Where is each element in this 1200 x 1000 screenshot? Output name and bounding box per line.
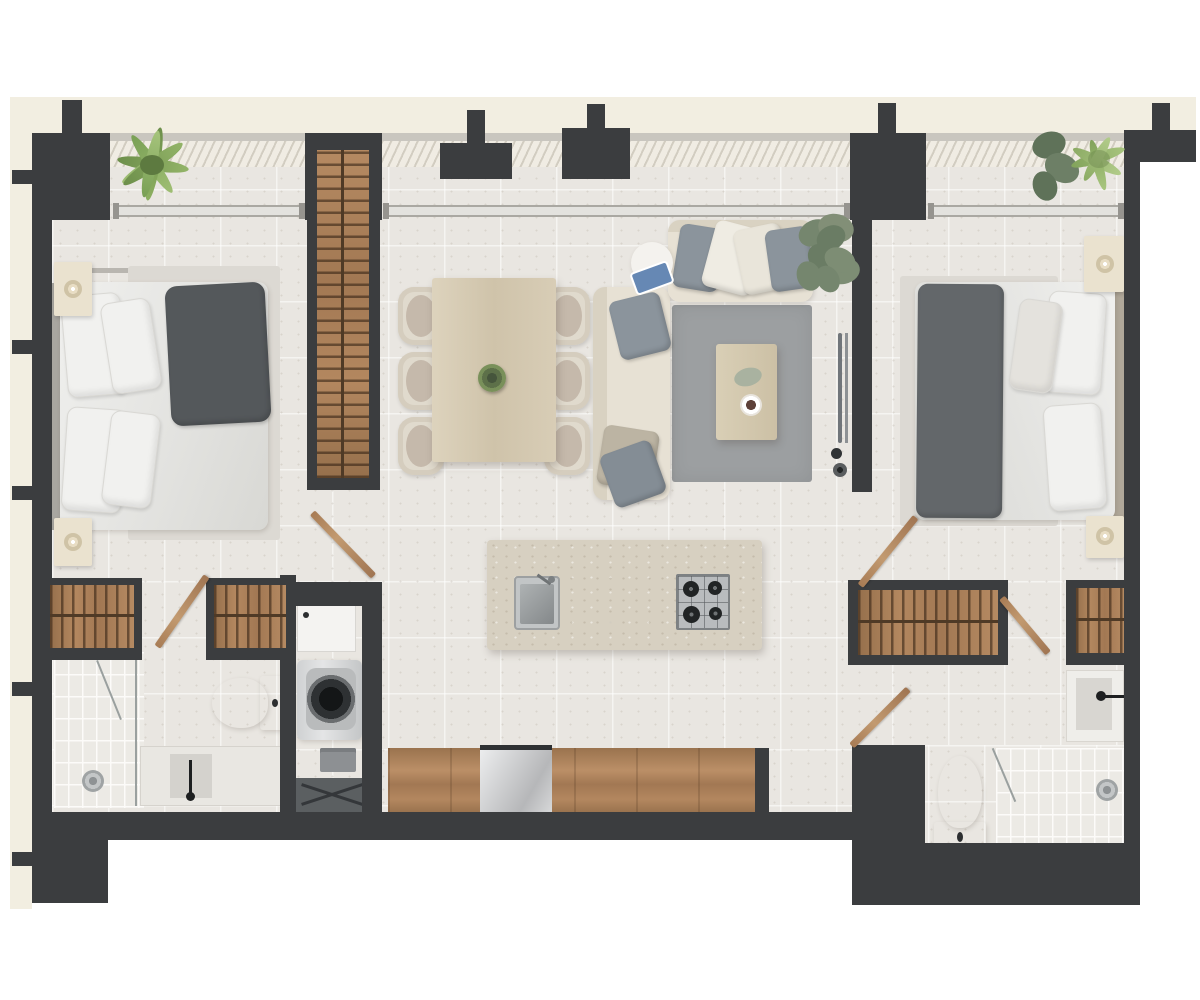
shower1-glass <box>135 652 137 806</box>
table-centerpiece-plant <box>478 364 506 392</box>
wall-top-right-arm <box>1124 130 1196 162</box>
wall-tick <box>12 486 32 500</box>
wardrobe-rail <box>369 220 380 490</box>
vanity2-sink <box>1076 678 1112 730</box>
wall-tick <box>12 852 32 866</box>
closet2a-rod <box>858 620 998 623</box>
speaker-dot <box>831 448 842 459</box>
wall-right <box>1124 130 1140 905</box>
wall-stub <box>587 104 605 128</box>
island-sink-basin <box>520 584 554 624</box>
hob-burner <box>709 607 722 620</box>
washer-door <box>306 668 356 730</box>
wall-bath2-left-block <box>852 745 925 905</box>
hob-burner <box>683 606 700 623</box>
floor-plan <box>0 0 1200 1000</box>
wall-tv-shelf <box>845 333 848 443</box>
showerhead <box>82 770 104 792</box>
monstera-plant-bed2 <box>812 222 860 297</box>
utility-faucet-dot <box>303 612 309 618</box>
tall-appliance <box>480 745 552 817</box>
hob-burner <box>708 581 722 595</box>
coffee-table <box>716 344 777 440</box>
wall-stub <box>878 103 896 133</box>
toilet1-bowl <box>212 678 268 728</box>
kitchen-base-cabinets <box>388 748 756 814</box>
plants-bedroom2-top <box>1030 120 1130 230</box>
candle <box>64 533 82 551</box>
island-hob <box>676 574 730 630</box>
coffee-cup <box>740 394 762 416</box>
wardrobe-bottom-bar <box>307 478 380 490</box>
hob-burner <box>683 581 699 597</box>
counter-end-wall <box>755 748 769 815</box>
candle <box>1096 255 1114 273</box>
candle <box>1096 527 1114 545</box>
wardrobe-rail <box>307 220 317 490</box>
wall-utility-right <box>362 582 382 812</box>
wall-tv <box>838 333 842 443</box>
vanity1-faucet <box>189 760 192 794</box>
toilet1-button <box>272 699 278 707</box>
wall-bottom-right-block <box>925 843 1140 905</box>
wall-bottom <box>52 812 872 840</box>
bed2-blanket <box>916 284 1004 519</box>
closet2b-rod <box>1076 618 1124 621</box>
wall-stub <box>467 110 485 143</box>
showerhead <box>1096 779 1118 801</box>
vanity2-faucet-dot <box>1096 691 1106 701</box>
bed1-blanket <box>164 281 271 426</box>
wall-pier-a <box>440 143 512 179</box>
wall-left <box>32 133 52 872</box>
closet1b-rod <box>214 614 286 617</box>
toilet2-bowl <box>938 756 982 828</box>
window-living <box>385 205 848 217</box>
wall-tick <box>12 170 32 184</box>
toilet2-button <box>957 832 963 842</box>
detergent-box <box>320 748 356 772</box>
wall-stub <box>62 100 82 133</box>
balcony-band-left <box>10 97 32 909</box>
fern-plant <box>105 120 200 215</box>
candle <box>64 280 82 298</box>
island-faucet-dot <box>548 576 555 583</box>
wardrobe-rod <box>341 150 344 478</box>
wall-tick <box>12 340 32 354</box>
wall-pier-c <box>850 133 926 220</box>
vanity1-counter <box>140 746 287 806</box>
wall-stub <box>1152 103 1170 130</box>
closet1a-rod <box>50 614 134 617</box>
wall-pier-b <box>562 128 630 179</box>
bed2-pillow <box>1042 402 1107 512</box>
vanity1-faucet-dot <box>186 792 195 801</box>
wall-tick <box>12 682 32 696</box>
speaker-dot <box>833 463 847 477</box>
